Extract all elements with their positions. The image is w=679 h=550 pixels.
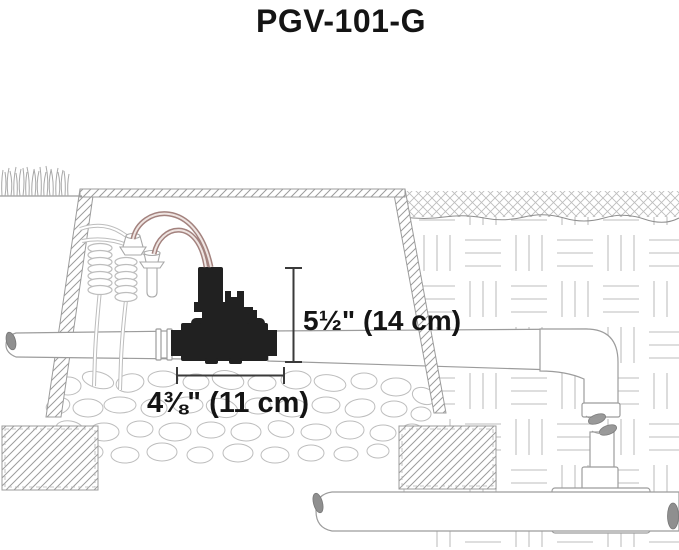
pipe-end-cap bbox=[668, 503, 679, 529]
brick-left bbox=[2, 426, 98, 490]
width-dimension-label: 4⅜" (11 cm) bbox=[147, 387, 309, 419]
riser-coupling bbox=[582, 467, 618, 489]
brick-right bbox=[399, 426, 496, 489]
gravel-bed bbox=[44, 368, 443, 473]
lateral-pipe bbox=[316, 492, 679, 531]
valve-foot bbox=[229, 358, 242, 364]
grease-cap-connector bbox=[140, 251, 164, 298]
flow-control-handle bbox=[225, 291, 244, 308]
riser-pipe bbox=[590, 432, 614, 468]
pipe-coupling-flange bbox=[156, 329, 161, 360]
height-dimension-label: 5½" (14 cm) bbox=[303, 305, 461, 336]
union-nut-left bbox=[181, 323, 201, 361]
valve-installation-diagram: 5½" (14 cm) 4⅜" (11 cm) PGV-101-G bbox=[0, 0, 679, 550]
valve-silhouette bbox=[171, 267, 277, 364]
outlet-stub bbox=[266, 330, 277, 356]
inlet-stub bbox=[171, 330, 183, 356]
solenoid-wires bbox=[133, 214, 211, 267]
page-title: PGV-101-G bbox=[256, 3, 426, 39]
union-nut-right bbox=[247, 323, 268, 361]
soil-cover-below-pipe bbox=[402, 531, 433, 550]
ground-left bbox=[0, 166, 82, 196]
diagram-canvas: 5½" (14 cm) 4⅜" (11 cm) PGV-101-G bbox=[0, 0, 679, 550]
valve-foot bbox=[205, 358, 218, 364]
ground-surface-hatch bbox=[404, 191, 679, 217]
box-lid bbox=[80, 189, 405, 197]
solenoid bbox=[198, 267, 223, 308]
grass bbox=[2, 166, 69, 196]
